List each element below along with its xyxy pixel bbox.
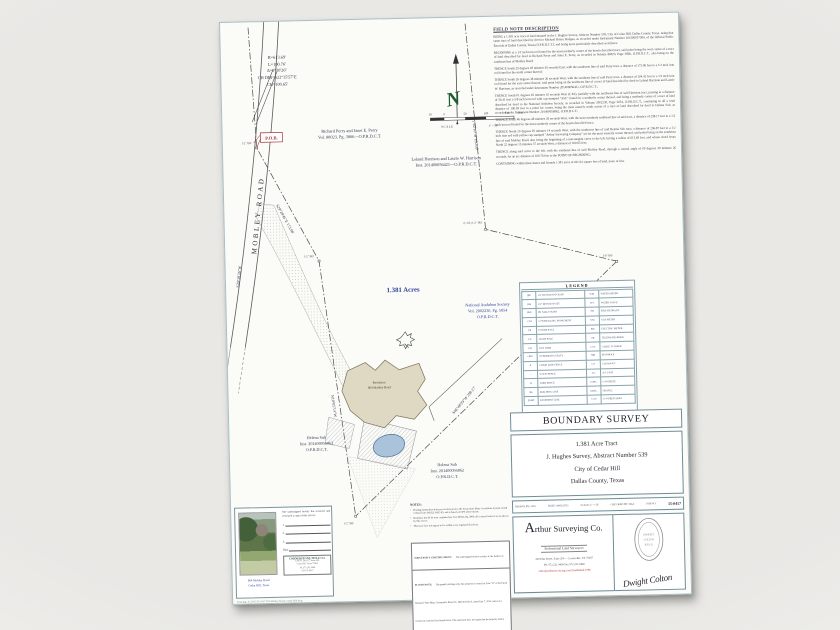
firm-name: Arthur Surveying Co. (517, 519, 609, 537)
legend-symbol: IRF (522, 291, 537, 300)
svg-text:50: 50 (429, 113, 433, 117)
legend-symbol: GM (585, 316, 600, 325)
firm-initial: A (524, 521, 534, 536)
flood-note-box: FLOOD NOTE: By graphic plotting only, th… (411, 568, 512, 630)
tract-description-line: Dallas County, Texas (512, 473, 682, 489)
surveyor-signature: Dwight Colton (622, 572, 672, 589)
flood-note-title: FLOOD NOTE: (415, 583, 433, 586)
title-company-address-line: GF# 15-0417 (285, 569, 329, 573)
firm-phone: Ph. 972.221.9439 Fax 972.221.9440 (518, 562, 610, 568)
svg-text:COLTON: COLTON (644, 538, 654, 541)
svg-text:1/2" IRF: 1/2" IRF (344, 521, 355, 525)
firm-email-line: office@arthursurveying.com Established 1… (519, 569, 611, 574)
surveyor-firm-box: Arthur Surveying Co. Professional Land S… (512, 513, 686, 594)
residence-address: 904 Mobley Road (359, 385, 399, 391)
drawing-date: DATE: 04/02/2015 (548, 504, 569, 507)
photo-caption-city: Cedar Hill, Texas (237, 583, 281, 589)
field-notes-block: FIELD NOTE DESCRIPTION BEING a 1.381 acr… (493, 23, 679, 285)
legend-symbol: CO (586, 360, 601, 369)
field-note-paragraph: BEING a 1.381 acre tract of land situate… (493, 31, 673, 48)
firm-address: 220 Elm Street, Suite 200 — Lewisville, … (518, 556, 610, 562)
svg-text:DWIGHT: DWIGHT (643, 533, 654, 536)
signature-line: 1. (282, 522, 330, 526)
signature-rule (286, 539, 331, 543)
survey-title: BOUNDARY SURVEY (510, 409, 682, 432)
svg-text:0: 0 (443, 112, 445, 116)
scanned-survey-document: 1/2" IRF 1/2" IRF (C.M.) 1/2" IRF 5/8" I… (0, 0, 840, 630)
legend-label: EASEMENT LINE (538, 395, 587, 405)
legend-symbol: GRVL. (587, 386, 602, 395)
svg-text:S 1°02'10"W 190.99': S 1°02'10"W 190.99' (471, 117, 480, 151)
field-note-paragraph: THENCE North 10 degrees 05 minutes 14 se… (496, 126, 676, 148)
point-of-beginning-flag: P.O.B. (253, 132, 282, 148)
field-notes-paragraphs: BEING a 1.381 acre tract of land situate… (493, 31, 676, 166)
svg-text:1/2" IRF: 1/2" IRF (242, 141, 253, 145)
legend-table: IRF1/2" IRON ROD FOUNDWMWATER METERIRS1/… (521, 288, 636, 406)
svg-text:100: 100 (484, 111, 489, 115)
legend-symbol: COV. (587, 395, 602, 404)
firm-logo-block: Arthur Surveying Co. Professional Land S… (513, 515, 615, 592)
field-note-paragraph: THENCE South 46 degrees 48 minutes 29 se… (495, 114, 675, 127)
owner-label-helena-left: Helena Sub Inst. 201400056862 O.P.R.D.C.… (286, 434, 346, 454)
north-letter: N (443, 87, 463, 112)
residence-label: Residence 904 Mobley Road (359, 380, 399, 390)
job-number: 15-0417 (668, 501, 681, 505)
svg-text:1/2" IRF: 1/2" IRF (304, 254, 315, 258)
field-note-paragraph: THENCE South 01 degrees 02 minutes 10 se… (495, 90, 675, 116)
owner-label-harrison: Leland Harrison and Laurie W. Harrison I… (405, 155, 487, 169)
legend-symbol: CONC. (587, 377, 602, 386)
legend-symbol: ESMT. (524, 396, 539, 405)
title-company-address: 1350 N. Hwy 67, Suite 200Cedar Hill, Tex… (285, 560, 329, 574)
house-photo (238, 512, 277, 576)
certification-title: SURVEYOR'S CERTIFICATION: (414, 555, 452, 559)
legend-symbol: FH (585, 307, 600, 316)
owner-label-audubon: National Audubon Society Vol. 2002230, P… (455, 301, 519, 321)
svg-text:(C.M.) 1/2" IRF: (C.M.) 1/2" IRF (464, 220, 483, 224)
seal-and-signature: DWIGHT COLTON R.P.L.S. Dwight Colton (613, 514, 685, 591)
svg-text:SCALE: SCALE (441, 124, 453, 128)
field-note-paragraph: THENCE South 29 degrees 28 minutes 45 se… (494, 62, 674, 75)
firm-tagline: Professional Land Surveyors (541, 544, 586, 552)
legend-symbol: / (523, 370, 538, 379)
title-company-box: CORNERSTONE TITLE CO. 1350 N. Hwy 67, Su… (283, 555, 331, 576)
legend-symbol: WV (585, 298, 600, 307)
receipt-panel: 904 Mobley Road Cedar Hill, Texas The un… (234, 506, 334, 599)
legend-symbol: MH (586, 351, 601, 360)
receipt-form: The undersigned hereby has received and … (282, 510, 331, 576)
checked-by: CHECKED BY: DLA (611, 503, 635, 507)
legend-symbol: PP (522, 326, 537, 335)
legend-symbol: W (524, 379, 539, 388)
legend-symbol: PKF (522, 308, 537, 317)
signature-line: 3. (283, 539, 331, 543)
note-bullet: This tract does not appear to lie within… (410, 523, 509, 529)
legend-symbol: CM (522, 317, 537, 326)
legend-symbol: BL (524, 388, 539, 397)
svg-text:R.P.L.S.: R.P.L.S. (645, 543, 654, 546)
legend-symbol: OHU (523, 352, 538, 361)
owner-label-perry: Richard Perry and Janet E. Perry Vol. 88… (309, 127, 389, 141)
job-number-label: JOB NO. (646, 502, 656, 505)
receipt-heading: The undersigned hereby has received and … (282, 510, 330, 518)
svg-text:N10°05'14"W: N10°05'14"W (330, 395, 338, 418)
date-line: Date (283, 548, 331, 552)
legend-box: LEGEND IRF1/2" IRON ROD FOUNDWMWATER MET… (519, 280, 638, 420)
drawing-scale: SCALE: 1" = 50' (580, 504, 598, 507)
north-arrow: N (442, 54, 463, 125)
legend-row: ESMT.EASEMENT LINECOV.COVERED AREA (524, 394, 635, 405)
svg-text:50: 50 (464, 112, 468, 116)
drawing-file-path: Drawing: Z:\2015\15-0417 904 Mobley Road… (237, 599, 302, 603)
tree-symbol (396, 332, 414, 349)
date-label: Date (283, 549, 288, 552)
legend-symbol: GW (523, 344, 538, 353)
general-notes-block: NOTES: Bearing datum shown hereon is ref… (410, 501, 510, 530)
legend-symbol: CTV (586, 342, 601, 351)
drawn-by: DRAWN BY: LNG (515, 505, 536, 508)
field-note-paragraph: CONTAINING within these metes and bounds… (496, 157, 676, 165)
legend-symbol: EM (585, 325, 600, 334)
flood-note-text: By graphic plotting only, this property … (415, 581, 509, 630)
surveyor-seal: DWIGHT COLTON R.P.L.S. (613, 515, 684, 565)
survey-page: 1/2" IRF 1/2" IRF (C.M.) 1/2" IRF 5/8" I… (219, 12, 692, 605)
legend-symbol: AC (586, 369, 601, 378)
signature-rule (286, 531, 331, 535)
field-note-paragraph: THENCE South 26 degrees 38 minutes 26 se… (494, 74, 674, 91)
interior-lot-lines (427, 339, 503, 421)
field-note-paragraph: BEGINNING at a 1/2 inch iron rod found f… (494, 47, 674, 64)
field-note-paragraph: THENCE along said curve to the left, wit… (496, 146, 676, 159)
signature-line: 2. (283, 531, 331, 535)
legend-symbol: IRS (522, 300, 537, 309)
legend-symbol: TR (586, 333, 601, 342)
residence-footprint (341, 359, 427, 429)
svg-text:P.O.B.: P.O.B. (265, 135, 278, 140)
photo-caption: 904 Mobley Road Cedar Hill, Texas (237, 578, 281, 589)
signature-rule (286, 522, 331, 526)
legend-label: COVERED AREA (601, 394, 635, 404)
legend-symbol: WM (585, 289, 600, 298)
date-rule (289, 548, 331, 552)
svg-text:S26°38'26"W: S26°38'26"W (235, 265, 242, 287)
owner-label-helena-right: Helena Sub Inst. 201400056862 O.P.R.D.C.… (417, 461, 477, 481)
legend-symbol: LP (523, 335, 538, 344)
tract-description-box: 1.381 Acre TractJ. Hughes Survey, Abstra… (510, 431, 683, 498)
notes-list: Bearing datum shown hereon is referenced… (410, 506, 509, 529)
legend-symbol: X (523, 361, 538, 370)
curve-data-block: R=613.69'L=100.76'Δ=9°30'26"CH DIR=S22°1… (235, 54, 320, 89)
receipt-signature-lines: 1.2.3. (282, 522, 330, 543)
acreage-label: 1.381 Acres (363, 285, 443, 297)
